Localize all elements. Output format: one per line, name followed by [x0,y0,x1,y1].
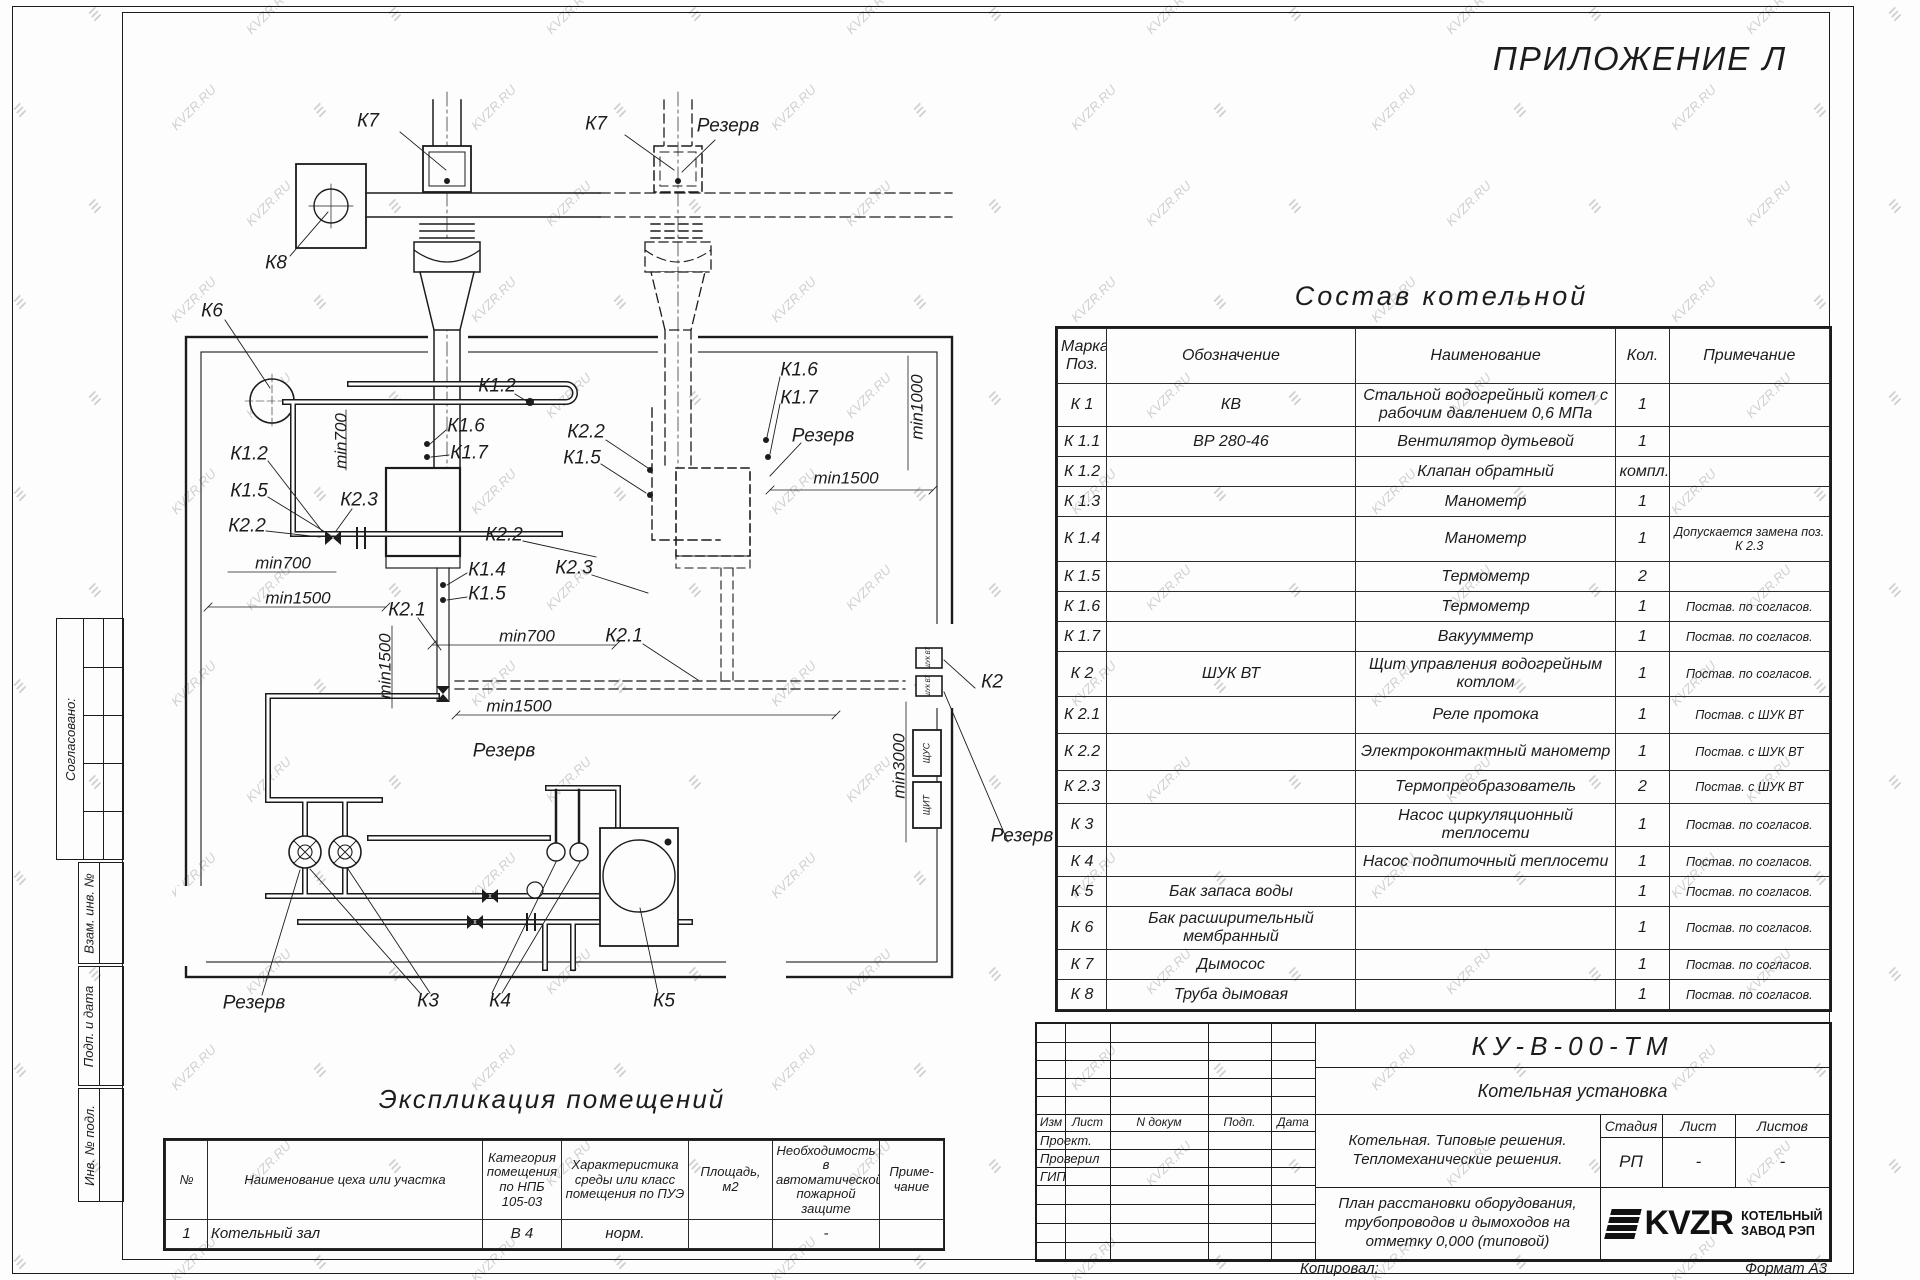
plan-label: К2.3 [555,559,593,578]
plan-label: min1000 [909,374,926,439]
table-cell: Труба дымовая [1107,980,1356,1010]
table-row: К 1.4Манометр1Допускается замена поз. К … [1058,517,1830,562]
table-cell: Вентилятор дутьевой [1355,427,1616,457]
column-header: Площадь, м2 [689,1141,773,1220]
plan-label: К2.2 [228,517,266,536]
table-cell: Постав. по согласов. [1669,847,1829,877]
table-cell: К 6 [1058,907,1107,950]
table-cell: К 1.3 [1058,487,1107,517]
table-cell: ШУК ВТ [1107,652,1356,697]
watermark-logo-icon: ≡ [1883,191,1908,222]
plan-label: min1500 [377,633,394,698]
table-cell: К 2 [1058,652,1107,697]
table-cell [1107,457,1356,487]
plan-label: Резерв [223,994,285,1013]
table-row: К 2.1Реле протока1Постав. с ШУК ВТ [1058,697,1830,734]
plan-label: min1500 [265,590,330,607]
plan-label: ЩИТ [923,795,932,815]
plan-label: К1.5 [468,585,506,604]
plan-label: ШУК ВТ [926,647,932,669]
table-cell: 1 [1616,907,1669,950]
table-cell: Бак расширительный мембранный [1107,907,1356,950]
filing-stamp-box: Подп. и дата [78,966,124,1086]
table-cell: - [773,1220,880,1249]
column-header: Приме- чание [880,1141,944,1220]
table-row: К 1КВСтальной водогрейный котел с рабочи… [1058,384,1830,427]
table-cell [1107,592,1356,622]
table-cell: Электроконтактный манометр [1355,734,1616,771]
table-cell: Котельный зал [208,1220,483,1249]
table-cell: Постав. по согласов. [1669,907,1829,950]
plan-label: min700 [255,555,311,572]
titleblock-column-header: Дата [1271,1114,1315,1131]
table-row: К 1.1ВР 280-46Вентилятор дутьевой1 [1058,427,1830,457]
plan-label: К3 [417,992,439,1011]
column-header: Категория помещения по НПБ 105-03 [483,1141,562,1220]
titleblock-role-label: Проект. [1040,1132,1110,1149]
table-cell: Постав. по согласов. [1669,592,1829,622]
table-cell: Постав. с ШУК ВТ [1669,734,1829,771]
table-cell: К 1 [1058,384,1107,427]
appendix-title: ПРИЛОЖЕНИЕ Л [1450,40,1830,78]
table-cell: Насос подпиточный теплосети [1355,847,1616,877]
table-row: К 1.6Термометр1Постав. по согласов. [1058,592,1830,622]
watermark-logo-icon: ≡ [1883,1151,1908,1182]
table-cell [1107,734,1356,771]
plan-label: Резерв [792,427,854,446]
table-cell [1669,384,1829,427]
kvzr-logomark [1604,1209,1641,1239]
plan-label: К2.3 [340,491,378,510]
table-cell: К 1.1 [1058,427,1107,457]
stage-value: - [1735,1137,1830,1187]
plan-label: К7 [585,115,607,134]
table-row: К 5Бак запаса воды1Постав. по согласов. [1058,877,1830,907]
table-header-row: Марка Поз.ОбозначениеНаименованиеКол.При… [1058,329,1830,384]
titleblock-column-header: Изм [1037,1114,1065,1131]
table-cell: 1 [1616,517,1669,562]
plan-label: min1500 [486,698,551,715]
table-cell: Допускается замена поз. К 2.3 [1669,517,1829,562]
filing-stamp-label: Взам. инв. № [82,873,97,953]
table-row: К 6Бак расширительный мембранный1Постав.… [1058,907,1830,950]
titleblock-role-label: Проверил [1040,1150,1110,1167]
title-block: ИзмЛистN докумПодп.ДатаПроект.ПроверилГИ… [1035,1022,1832,1262]
titleblock-column-header: N докум [1110,1114,1208,1131]
plan-label: min1500 [813,470,878,487]
table-cell: 1 [1616,980,1669,1010]
table-cell: норм. [562,1220,689,1249]
plan-label: К2.2 [567,423,605,442]
sostav-title: Состав котельной [1055,281,1828,312]
column-header: Характеристика среды или класс помещения… [562,1141,689,1220]
table-cell: 1 [1616,427,1669,457]
plan-label: К4 [489,992,511,1011]
column-header: Примечание [1669,329,1829,384]
object-name: Котельная установка [1315,1069,1830,1113]
table-cell: Постав. по согласов. [1669,622,1829,652]
table-cell: К 1.4 [1058,517,1107,562]
table-cell [880,1220,944,1249]
plan-label: К2.1 [388,601,426,620]
table-cell: К 4 [1058,847,1107,877]
table-cell: 1 [1616,734,1669,771]
plan-label: К1.4 [468,561,506,580]
plan-label: К1.7 [450,444,488,463]
plan-label: К1.2 [230,445,268,464]
table-cell: К 2.1 [1058,697,1107,734]
table-cell: Постав. по согласов. [1669,980,1829,1010]
column-header: Наименование [1355,329,1616,384]
watermark-logo-icon: ≡ [1883,383,1908,414]
table-cell: В 4 [483,1220,562,1249]
table-cell: Насос циркуляционный теплосети [1355,804,1616,847]
table-row: К 4Насос подпиточный теплосети1Постав. п… [1058,847,1830,877]
table-cell: 1 [166,1220,208,1249]
column-header: Марка Поз. [1058,329,1107,384]
table-cell: Реле протока [1355,697,1616,734]
table-row: К 2.3Термопреобразователь2Постав. с ШУК … [1058,771,1830,804]
titleblock-role-label: ГИП [1040,1168,1110,1185]
table-cell: компл. [1616,457,1669,487]
table-cell: К 3 [1058,804,1107,847]
table-cell: Щит управления водогрейным котлом [1355,652,1616,697]
table-cell: КВ [1107,384,1356,427]
column-header: Наименование цеха или участка [208,1141,483,1220]
kvzr-logo-text: KVZR [1645,1204,1734,1243]
table-cell [1669,457,1829,487]
table-cell: Постав. по согласов. [1669,877,1829,907]
table-cell: Постав. по согласов. [1669,950,1829,980]
table-cell: К 5 [1058,877,1107,907]
plan-label: К2.1 [605,627,643,646]
table-cell: Постав. с ШУК ВТ [1669,697,1829,734]
table-cell: Термопреобразователь [1355,771,1616,804]
plan-label: К7 [357,112,379,131]
table-cell: Постав. с ШУК ВТ [1669,771,1829,804]
filing-stamp-label: Согласовано: [63,698,78,781]
table-cell [1355,907,1616,950]
titleblock-column-header: Лист [1065,1114,1110,1131]
plan-label: Резерв [697,117,759,136]
watermark-logo-icon: ≡ [1883,0,1908,30]
filing-stamp-box: Согласовано: [56,618,124,860]
table-cell [1669,562,1829,592]
table-row: К 1.5Термометр2 [1058,562,1830,592]
plan-label: Резерв [473,742,535,761]
project-description: Котельная. Типовые решения. Тепломеханич… [1315,1116,1600,1186]
table-cell [1355,877,1616,907]
plan-label: min3000 [891,733,908,798]
eksplikacia-title: Экспликация помещений [163,1084,941,1115]
table-row: К 3Насос циркуляционный теплосети1Постав… [1058,804,1830,847]
table-cell: 1 [1616,592,1669,622]
filing-stamp-box: Инв. № подл. [78,1088,124,1202]
stage-header: Стадия [1600,1116,1662,1136]
table-cell: 1 [1616,804,1669,847]
plan-label: К1.5 [563,449,601,468]
table-row: 1Котельный залВ 4норм.- [166,1220,944,1249]
column-header: № [166,1141,208,1220]
filing-stamp-box: Взам. инв. № [78,862,124,964]
table-cell: 1 [1616,697,1669,734]
table-cell: 2 [1616,562,1669,592]
table-cell: 1 [1616,847,1669,877]
plan-label: К6 [201,302,223,321]
table-cell: Термометр [1355,562,1616,592]
table-cell: Бак запаса воды [1107,877,1356,907]
table-cell: К 2.3 [1058,771,1107,804]
column-header: Кол. [1616,329,1669,384]
plan-label: К2 [981,673,1003,692]
plan-label: К1.7 [780,389,818,408]
table-row: К 1.3Манометр1 [1058,487,1830,517]
table-cell [1107,847,1356,877]
stage-header: Листов [1735,1116,1830,1136]
table-cell [1107,622,1356,652]
plan-label: min700 [499,628,555,645]
table-cell [1107,562,1356,592]
table-cell: 1 [1616,622,1669,652]
table-cell: 1 [1616,950,1669,980]
table-row: К 8Труба дымовая1Постав. по согласов. [1058,980,1830,1010]
format-label: Формат А3 [1745,1260,1827,1277]
filing-stamp-label: Подп. и дата [82,985,97,1066]
table-cell: 1 [1616,652,1669,697]
table-cell: 1 [1616,487,1669,517]
table-cell: 1 [1616,384,1669,427]
table-row: К 2.2Электроконтактный манометр1Постав. … [1058,734,1830,771]
stage-value: РП [1600,1137,1662,1187]
table-cell: Манометр [1355,487,1616,517]
plan-label: К1.5 [230,482,268,501]
plan-label: К1.6 [447,417,485,436]
plan-label: К2.2 [485,526,523,545]
table-header-row: №Наименование цеха или участкаКатегория … [166,1141,944,1220]
table-cell [1107,771,1356,804]
table-row: К 1.7Вакуумметр1Постав. по согласов. [1058,622,1830,652]
watermark-logo-icon: ≡ [1883,767,1908,798]
stage-value: - [1662,1137,1735,1187]
eksplikacia-table: №Наименование цеха или участкаКатегория … [163,1138,945,1251]
column-header: Обозначение [1107,329,1356,384]
copied-label: Копировал: [1300,1260,1379,1277]
table-cell: Термометр [1355,592,1616,622]
table-cell: Дымосос [1107,950,1356,980]
table-cell [1669,487,1829,517]
table-cell: К 2.2 [1058,734,1107,771]
table-cell: ВР 280-46 [1107,427,1356,457]
company-logo: KVZR КОТЕЛЬНЫЙ ЗАВОД РЭП [1600,1187,1830,1260]
titleblock-column-header: Подп. [1208,1114,1271,1131]
watermark-logo-icon: ≡ [1883,959,1908,990]
plan-label: ШУК ВТ [926,675,932,697]
plan-label: min700 [333,413,350,469]
stage-header: Лист [1662,1116,1735,1136]
table-cell: Стальной водогрейный котел с рабочим дав… [1355,384,1616,427]
plan-label: ЩУС [923,743,932,764]
plan-label: К8 [265,254,287,273]
table-row: К 2ШУК ВТЩит управления водогрейным котл… [1058,652,1830,697]
plan-label: К1.2 [478,377,516,396]
table-cell: Вакуумметр [1355,622,1616,652]
table-cell [1355,950,1616,980]
table-cell [689,1220,773,1249]
table-cell: К 1.5 [1058,562,1107,592]
table-row: К 7Дымосос1Постав. по согласов. [1058,950,1830,980]
sostav-table: Марка Поз.ОбозначениеНаименованиеКол.При… [1055,326,1832,1012]
table-cell: 2 [1616,771,1669,804]
table-cell [1669,427,1829,457]
table-cell [1107,487,1356,517]
table-cell [1355,980,1616,1010]
filing-stamp-label: Инв. № подл. [82,1105,97,1186]
table-cell: Постав. по согласов. [1669,804,1829,847]
sheet-title: План расстановки оборудования, трубопров… [1315,1188,1600,1259]
table-cell [1107,517,1356,562]
table-cell: К 1.2 [1058,457,1107,487]
table-cell [1107,697,1356,734]
column-header: Необходимость в автоматической пожарной … [773,1141,880,1220]
plan-label: К5 [653,992,675,1011]
doc-number: КУ-В-00-ТМ [1315,1026,1830,1066]
table-cell: К 8 [1058,980,1107,1010]
kvzr-logo-caption: КОТЕЛЬНЫЙ ЗАВОД РЭП [1741,1209,1822,1239]
table-cell [1107,804,1356,847]
table-cell: К 1.6 [1058,592,1107,622]
plan-label: Резерв [991,827,1053,846]
table-cell: 1 [1616,877,1669,907]
table-cell: К 7 [1058,950,1107,980]
drawing-sheet: KVZR.RU≡KVZR.RU≡KVZR.RU≡KVZR.RU≡KVZR.RU≡… [0,0,1920,1280]
watermark-logo-icon: ≡ [1883,575,1908,606]
table-cell: Постав. по согласов. [1669,652,1829,697]
table-row: К 1.2Клапан обратныйкомпл. [1058,457,1830,487]
table-cell: Манометр [1355,517,1616,562]
table-cell: К 1.7 [1058,622,1107,652]
table-cell: Клапан обратный [1355,457,1616,487]
plan-label: К1.6 [780,361,818,380]
